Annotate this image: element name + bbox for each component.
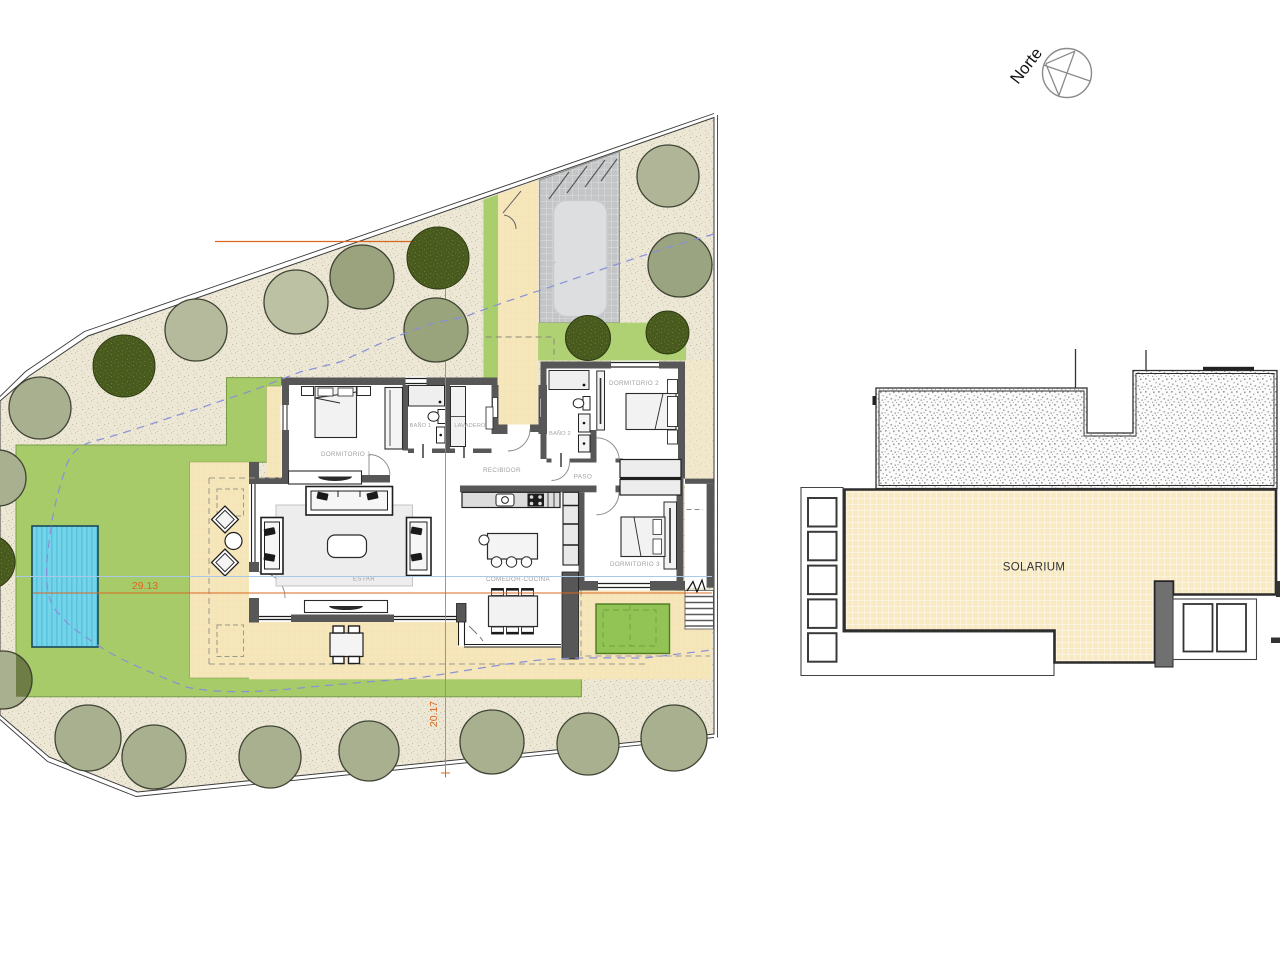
- svg-text:LAVADERO: LAVADERO: [454, 423, 486, 429]
- svg-text:DORMITORIO 1: DORMITORIO 1: [321, 451, 371, 458]
- svg-text:20.17: 20.17: [428, 701, 440, 727]
- svg-text:BAÑO 2: BAÑO 2: [549, 430, 571, 437]
- svg-text:BAÑO 1: BAÑO 1: [410, 422, 432, 429]
- svg-text:PASO: PASO: [574, 474, 592, 481]
- svg-text:DORMITORIO 2: DORMITORIO 2: [609, 380, 659, 387]
- svg-text:SOLARIUM: SOLARIUM: [1003, 562, 1065, 574]
- svg-text:RECIBIDOR: RECIBIDOR: [483, 467, 521, 474]
- svg-text:COMEDOR-COCINA: COMEDOR-COCINA: [486, 576, 551, 583]
- svg-text:29.13: 29.13: [132, 580, 158, 592]
- svg-text:DORMITORIO 3: DORMITORIO 3: [610, 561, 660, 568]
